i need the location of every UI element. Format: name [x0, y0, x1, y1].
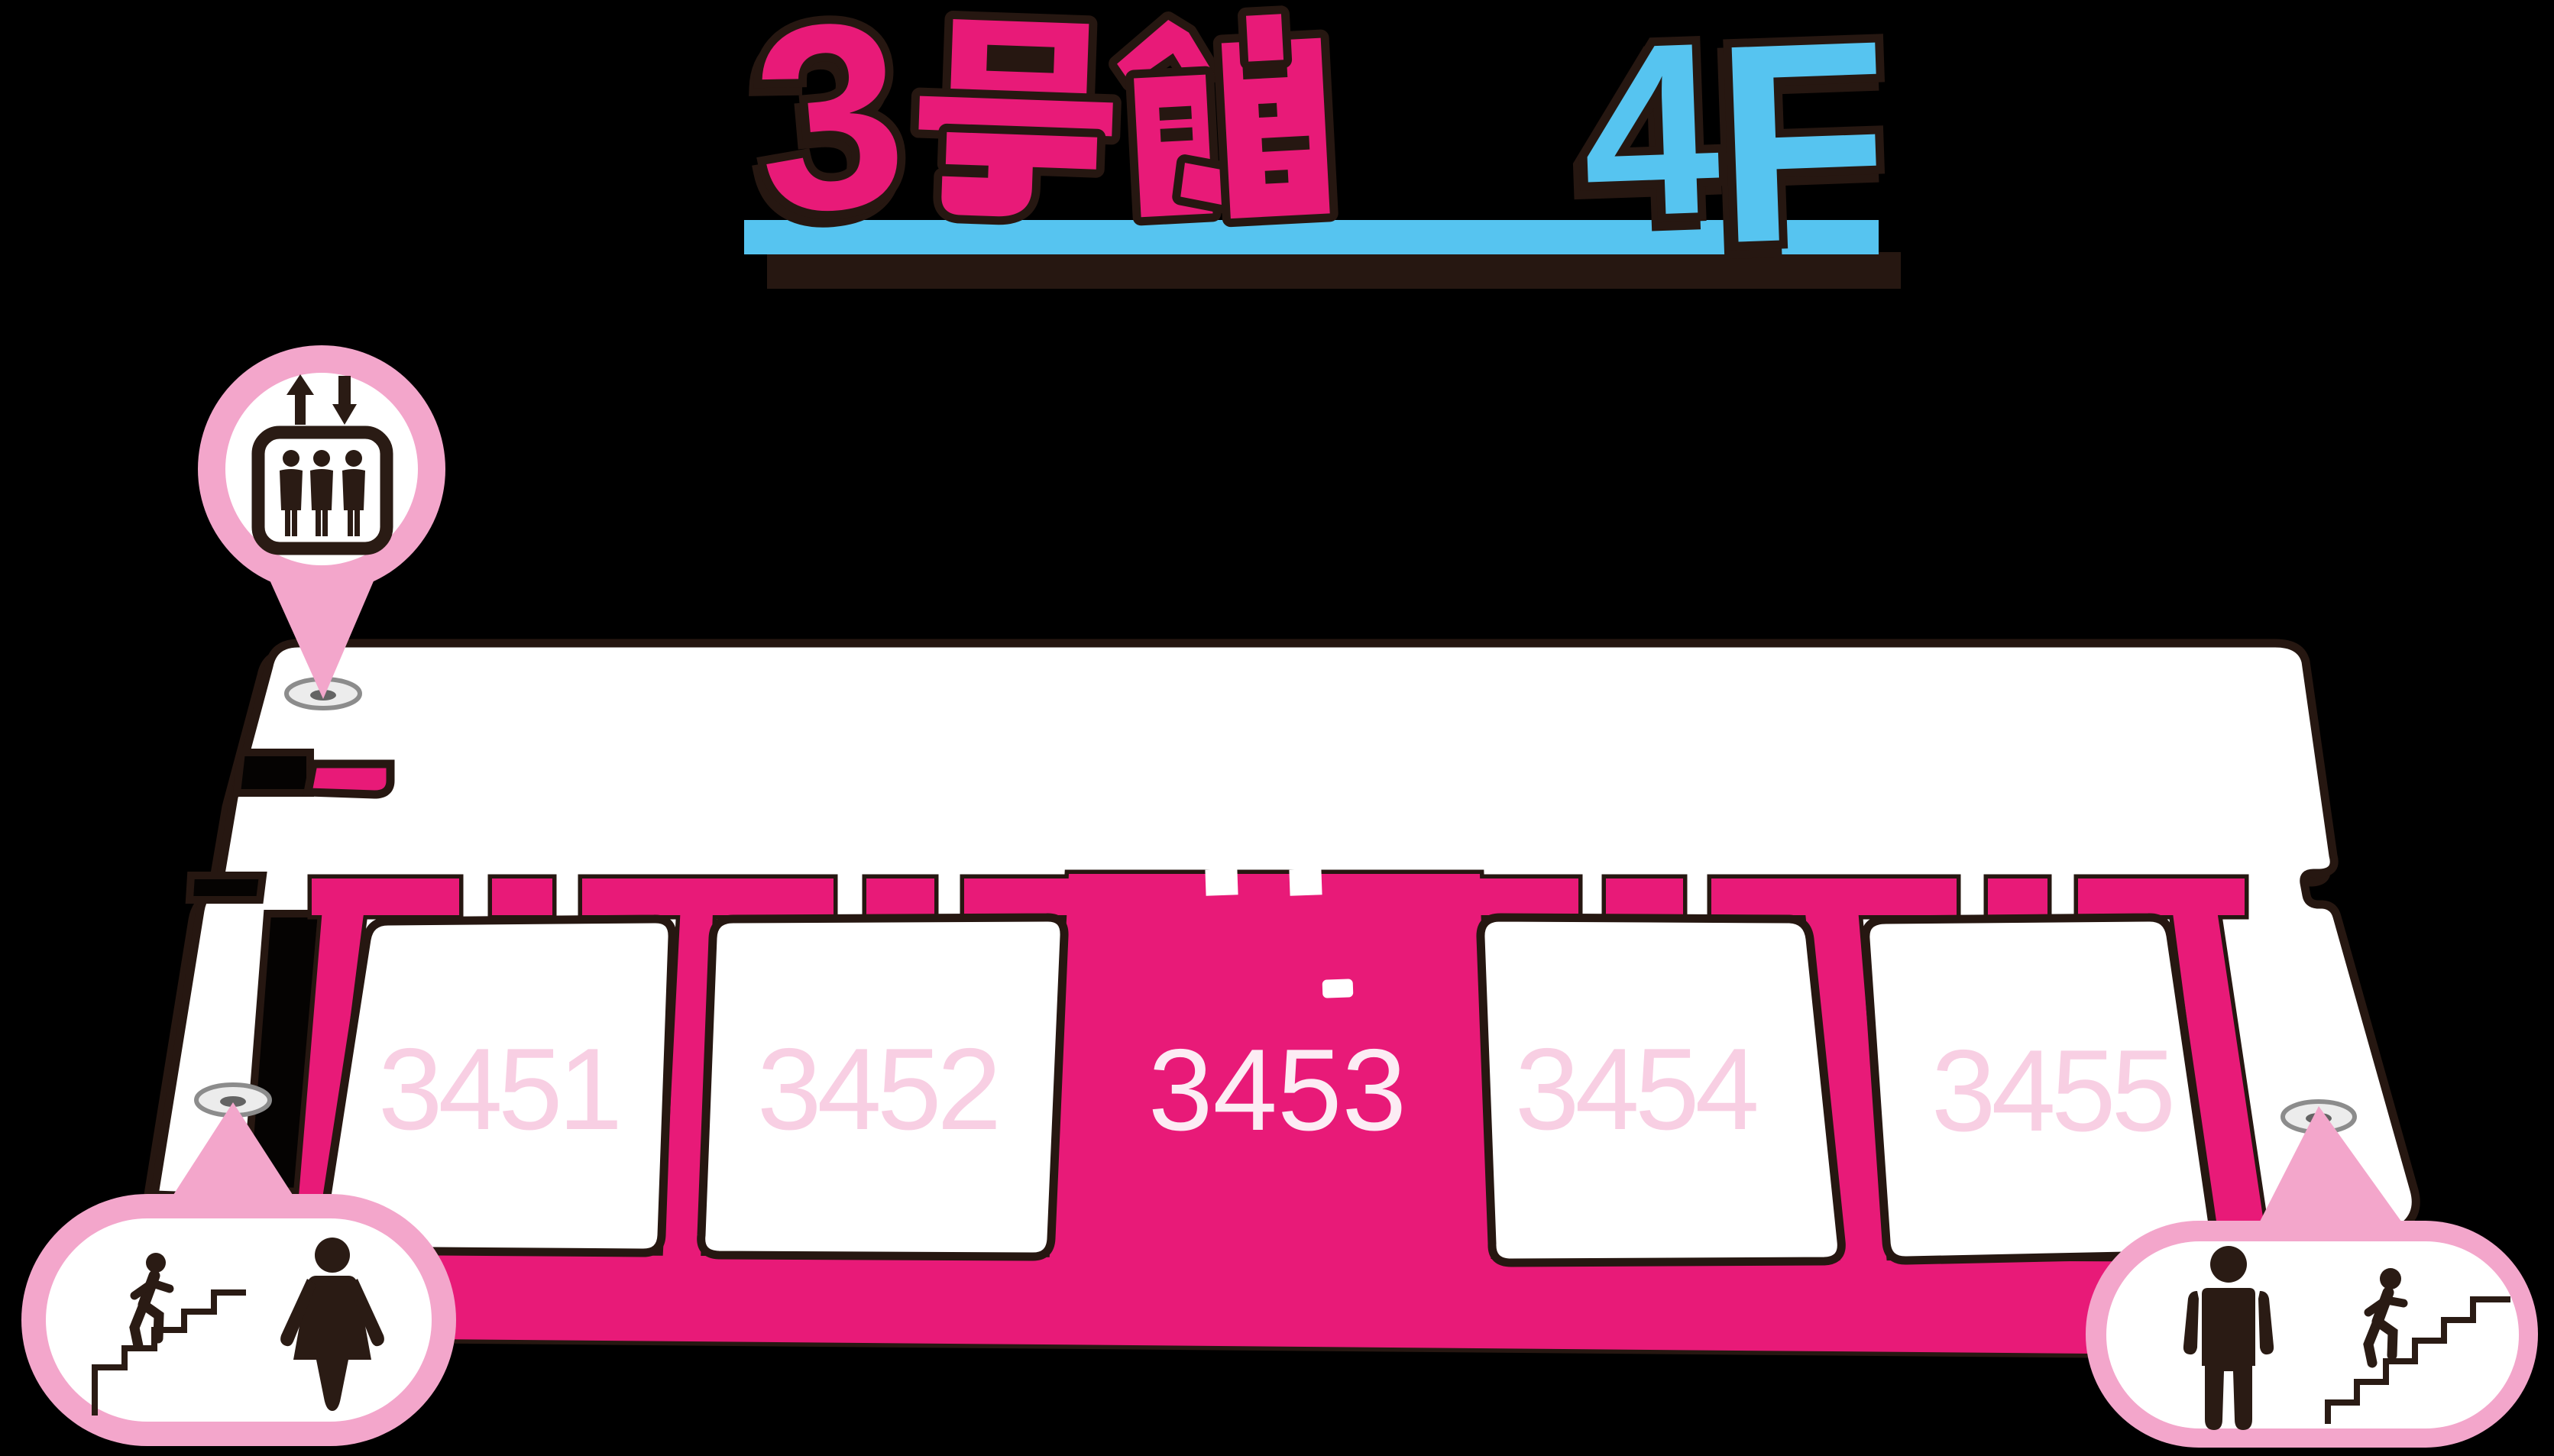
- svg-text:3: 3: [744, 0, 916, 270]
- svg-text:3453: 3453: [1148, 1025, 1406, 1155]
- svg-text:3455: 3455: [1931, 1026, 2172, 1156]
- svg-text:3451: 3451: [378, 1024, 618, 1154]
- svg-text:3454: 3454: [1515, 1024, 1757, 1154]
- svg-text:3452: 3452: [757, 1024, 997, 1154]
- svg-text:4: 4: [1578, 0, 1724, 268]
- svg-text:F: F: [1711, 0, 1894, 303]
